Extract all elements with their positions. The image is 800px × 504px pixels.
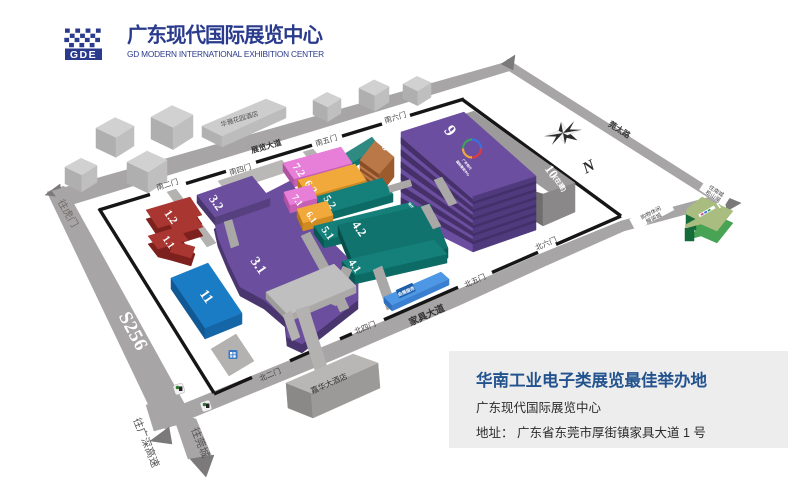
svg-text:地址： 广东省东莞市厚街镇家具大道 1 号: 地址： 广东省东莞市厚街镇家具大道 1 号 (476, 425, 706, 440)
svg-text:广东现代国际展览中心: 广东现代国际展览中心 (476, 400, 602, 415)
svg-text:广东现代国际展览中心: 广东现代国际展览中心 (127, 23, 323, 47)
svg-text:GDE: GDE (70, 49, 97, 61)
svg-text:GD MODERN INTERNATIONAL EXHIBI: GD MODERN INTERNATIONAL EXHIBITION CENTE… (127, 49, 324, 59)
svg-text:华南工业电子类展览最佳举办地: 华南工业电子类展览最佳举办地 (476, 370, 708, 390)
